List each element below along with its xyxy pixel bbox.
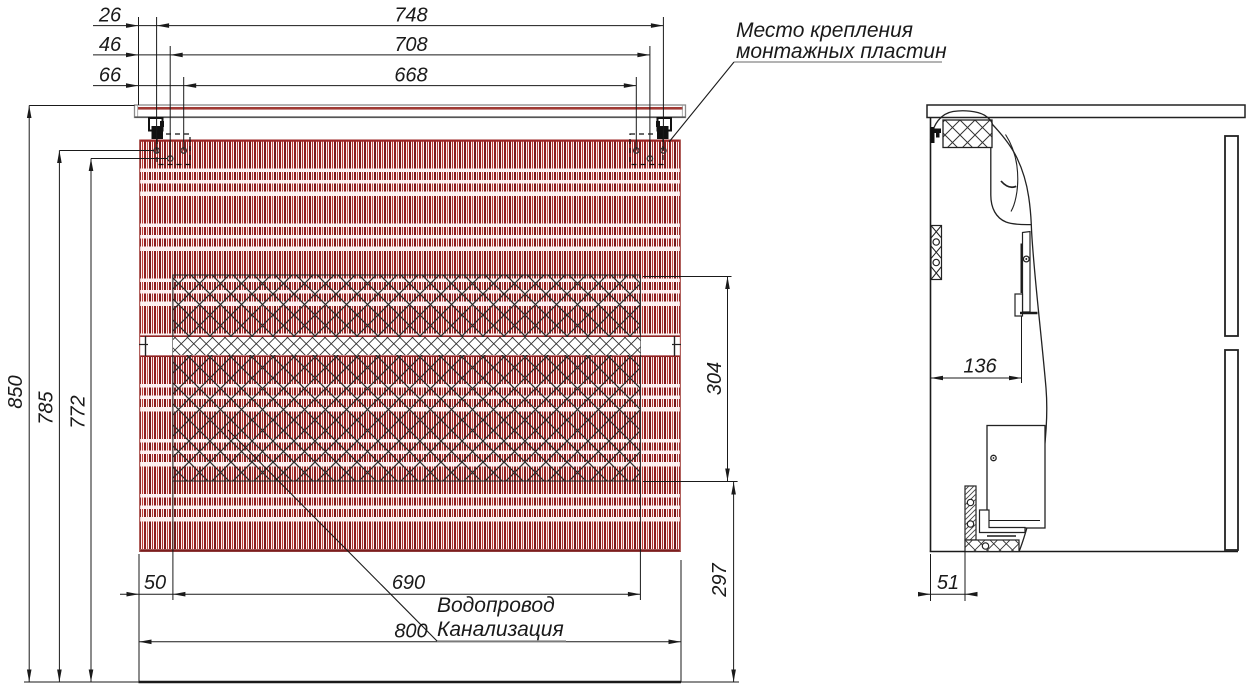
- svg-text:772: 772: [68, 395, 90, 428]
- svg-text:297: 297: [709, 562, 731, 597]
- svg-text:66: 66: [99, 65, 122, 87]
- svg-text:50: 50: [144, 572, 166, 594]
- svg-text:304: 304: [704, 362, 726, 395]
- svg-text:51: 51: [937, 572, 959, 594]
- svg-text:850: 850: [5, 375, 27, 408]
- svg-text:690: 690: [392, 572, 425, 594]
- svg-text:785: 785: [36, 390, 58, 424]
- svg-text:668: 668: [394, 65, 427, 87]
- svg-text:136: 136: [963, 356, 997, 378]
- svg-text:748: 748: [394, 5, 427, 27]
- svg-text:800: 800: [394, 621, 427, 643]
- svg-text:Водопровод: Водопровод: [437, 594, 555, 617]
- svg-text:26: 26: [98, 5, 122, 27]
- svg-text:Место крепления: Место крепления: [736, 19, 913, 42]
- svg-text:монтажных пластин: монтажных пластин: [736, 40, 947, 63]
- svg-text:708: 708: [394, 34, 427, 56]
- svg-text:46: 46: [99, 34, 122, 56]
- svg-text:Канализация: Канализация: [437, 618, 564, 641]
